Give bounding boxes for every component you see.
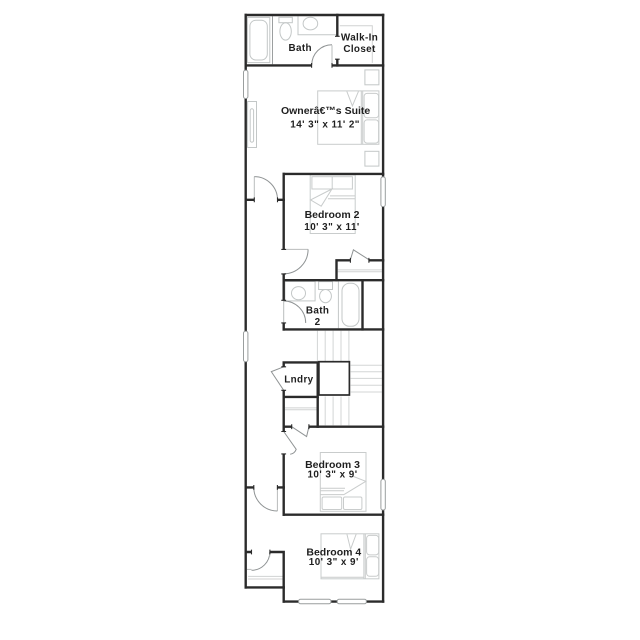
svg-text:Lndry: Lndry bbox=[284, 375, 313, 386]
svg-text:10' 3" x 11': 10' 3" x 11' bbox=[304, 222, 359, 233]
svg-text:Bath: Bath bbox=[306, 305, 329, 316]
svg-text:2: 2 bbox=[315, 317, 321, 328]
svg-text:14' 3" x 11' 2": 14' 3" x 11' 2" bbox=[290, 119, 360, 130]
svg-text:Bedroom 2: Bedroom 2 bbox=[305, 209, 360, 221]
svg-text:10' 3" x 9': 10' 3" x 9' bbox=[307, 470, 357, 481]
svg-text:Ownerâ€™s Suite: Ownerâ€™s Suite bbox=[281, 105, 370, 117]
svg-text:10' 3" x 9': 10' 3" x 9' bbox=[309, 557, 359, 568]
svg-text:Closet: Closet bbox=[343, 44, 376, 55]
svg-text:Bath: Bath bbox=[289, 43, 312, 54]
svg-text:Walk-In: Walk-In bbox=[341, 33, 378, 44]
